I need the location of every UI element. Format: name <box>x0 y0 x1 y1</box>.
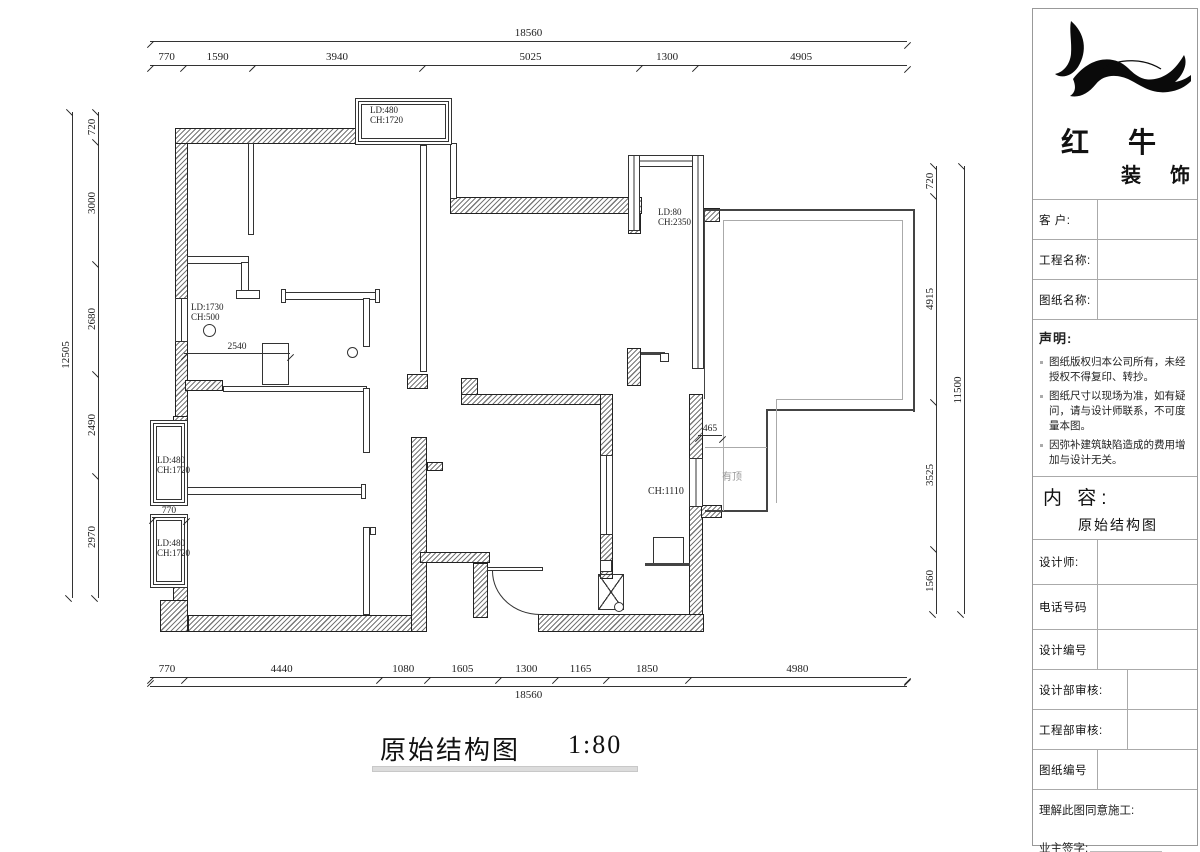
field-design-no: 设计编号 <box>1033 629 1197 669</box>
terrace-line-inner <box>776 399 777 503</box>
dim-text: 1605 <box>451 663 473 675</box>
window-balcony-door <box>175 298 188 342</box>
statement-section: 声明: 图纸版权归本公司所有，未经授权不得复印、转抄。 图纸尺寸以现场为准，如有… <box>1033 319 1197 476</box>
drawing-sheet: 18560 770 1590 3940 5025 1300 4905 770 4… <box>0 0 1200 852</box>
dim-text: 720 <box>86 119 98 136</box>
field-designer-label: 设计师: <box>1033 540 1098 584</box>
wall-step <box>420 552 490 563</box>
fixture-box <box>660 353 669 362</box>
wall-block <box>407 374 428 389</box>
dim-left-total: 12505 <box>72 112 86 598</box>
dim-770: 770 <box>152 506 186 518</box>
title-underline <box>372 766 638 772</box>
field-designer-value <box>1098 540 1197 584</box>
shaft-top <box>600 560 612 572</box>
dim-text: 770 <box>159 663 176 675</box>
field-project: 工程名称: <box>1033 239 1197 279</box>
field-project-label: 工程名称: <box>1033 240 1098 279</box>
circle-marker <box>614 602 624 612</box>
partition-cap <box>361 484 366 499</box>
circle-marker <box>203 324 216 337</box>
agree-text: 理解此图同意施工: <box>1039 802 1193 818</box>
dim-text: 2680 <box>86 308 98 330</box>
dim-left-chain: 720 3000 2680 2490 2970 <box>98 112 112 598</box>
terrace-line <box>705 209 915 211</box>
field-design-review-value <box>1128 670 1197 709</box>
terrace-line-inner <box>723 220 903 221</box>
window-bath-left <box>600 455 613 535</box>
field-client: 客 户: <box>1033 199 1197 239</box>
dim-text: 4440 <box>271 663 293 675</box>
statement-item: 因弥补建筑缺陷造成的费用增加与设计无关。 <box>1039 438 1193 468</box>
drawing-scale: 1:80 <box>568 730 622 760</box>
dim-top-chain: 770 1590 3940 5025 1300 4905 <box>150 52 907 66</box>
dim-text: 1560 <box>924 570 936 592</box>
terrace-line-inner <box>902 220 903 400</box>
dim-text: 18560 <box>515 27 543 39</box>
field-design-review: 设计部审核: <box>1033 669 1197 709</box>
dim-465: 465 <box>698 424 722 436</box>
terrace-divider <box>705 447 767 448</box>
wall-bottom-mid <box>538 614 704 632</box>
window-top-right-jamb <box>628 155 640 231</box>
dim-text: 720 <box>924 173 936 190</box>
brand-name: 红 牛 <box>1061 121 1172 161</box>
counter <box>653 537 684 565</box>
drawing-title: 原始结构图 <box>380 730 520 767</box>
label-balcony-door: LD:1730CH:500 <box>191 302 224 322</box>
field-engineering-review-value <box>1128 710 1197 749</box>
logo-area: 红 牛 装 饰 <box>1033 9 1197 199</box>
partition <box>420 145 427 372</box>
dim-top-total: 18560 <box>150 28 907 42</box>
label-window-left-lower: LD:480CH:1720 <box>157 538 190 558</box>
field-project-value <box>1098 240 1197 279</box>
terrace-line <box>704 209 705 399</box>
field-phone: 电话号码 <box>1033 584 1197 629</box>
dim-text: 1165 <box>570 663 592 675</box>
partition <box>248 143 254 235</box>
wall-stub <box>627 348 641 386</box>
statement-item: 图纸尺寸以现场为准，如有疑问，请与设计师联系，不可度量本图。 <box>1039 389 1193 434</box>
dim-text: 4905 <box>790 51 812 63</box>
owner-signature: 业主签字: <box>1039 840 1193 852</box>
partition <box>236 290 260 299</box>
wall-stub <box>427 462 443 471</box>
dim-right-total: 11500 <box>964 166 978 614</box>
dim-text: 2540 <box>228 342 247 352</box>
partition <box>450 143 457 199</box>
wall-door-jamb <box>473 563 488 618</box>
dim-text: 3940 <box>326 51 348 63</box>
dim-text: 1300 <box>515 663 537 675</box>
field-drawing: 图纸名称: <box>1033 279 1197 319</box>
label-window-left-upper: LD:480CH:1720 <box>157 455 190 475</box>
label-ch1110: CH:1110 <box>648 486 684 497</box>
field-drawing-no-label: 图纸编号 <box>1033 750 1098 789</box>
terrace-line-inner <box>777 399 903 400</box>
field-designer: 设计师: <box>1033 539 1197 584</box>
partition-notch <box>370 527 376 535</box>
title-block: 红 牛 装 饰 客 户: 工程名称: 图纸名称: 声明: 图纸版权归本公司所有，… <box>1032 8 1198 846</box>
content-heading: 内 容: <box>1043 483 1193 510</box>
dim-2540: 2540 <box>184 342 290 354</box>
field-design-no-label: 设计编号 <box>1033 630 1098 669</box>
field-client-label: 客 户: <box>1033 200 1098 239</box>
field-client-value <box>1098 200 1197 239</box>
field-engineering-review: 工程部审核: <box>1033 709 1197 749</box>
field-engineering-review-label: 工程部审核: <box>1033 710 1128 749</box>
field-phone-value <box>1098 585 1197 629</box>
wall-bath-top <box>461 394 603 405</box>
dim-text: 770 <box>158 51 175 63</box>
dim-text: 18560 <box>515 689 543 701</box>
window-bath-right <box>689 458 703 507</box>
dim-tick <box>147 41 154 48</box>
dim-text: 1850 <box>636 663 658 675</box>
dim-text: 5025 <box>520 51 542 63</box>
label-window-right: LD:80CH:2350 <box>658 207 691 227</box>
door-arc <box>492 571 540 615</box>
wall-bath-left-up <box>600 394 613 457</box>
content-section: 内 容: 原始结构图 <box>1033 476 1197 539</box>
field-drawing-no-value <box>1098 750 1197 789</box>
field-drawing-value <box>1098 280 1197 319</box>
wall-top-mid <box>450 197 642 214</box>
dim-text: 4915 <box>924 288 936 310</box>
field-design-review-label: 设计部审核: <box>1033 670 1128 709</box>
signature-section: 理解此图同意施工: 业主签字: <box>1033 789 1197 852</box>
terrace-line <box>705 510 768 512</box>
signature-line <box>1090 841 1162 852</box>
dim-right-chain: 720 4915 3525 1560 <box>936 166 950 614</box>
dim-text: 12505 <box>60 341 72 369</box>
field-drawing-label: 图纸名称: <box>1033 280 1098 319</box>
label-covered: 有顶 <box>722 472 742 483</box>
owner-signature-label: 业主签字: <box>1039 843 1088 852</box>
wall-left-upper <box>175 128 188 300</box>
counter-line <box>645 563 690 566</box>
field-phone-label: 电话号码 <box>1033 585 1098 629</box>
label-window-top: LD:480CH:1720 <box>370 105 403 125</box>
wall-bath-right-low <box>689 505 703 615</box>
dim-text: 1300 <box>656 51 678 63</box>
dim-text: 3000 <box>86 192 98 214</box>
wall-center-vertical <box>411 437 427 632</box>
dim-text: 11500 <box>952 376 964 403</box>
dim-text: 3525 <box>924 464 936 486</box>
partition <box>363 527 370 615</box>
dim-text: 465 <box>703 424 717 434</box>
terrace-line-inner <box>723 221 724 511</box>
wall-top-left <box>175 128 367 144</box>
partition <box>223 386 367 392</box>
dim-text: 2970 <box>86 526 98 548</box>
redbull-logo-icon <box>1041 17 1191 122</box>
dim-text: 2490 <box>86 414 98 436</box>
wall-bath-left-low <box>600 533 613 579</box>
terrace-line <box>913 209 915 412</box>
dim-text: 1080 <box>392 663 414 675</box>
partition <box>187 256 249 264</box>
statement-heading: 声明: <box>1039 328 1193 347</box>
wall-bottom-left <box>188 615 412 632</box>
dim-text: 770 <box>162 506 176 516</box>
wall-block <box>185 380 223 391</box>
partition-cap <box>281 289 286 303</box>
dim-bottom-total: 18560 <box>150 686 907 700</box>
terrace-line <box>766 409 768 512</box>
wall-bottom-corner <box>160 600 188 632</box>
partition <box>363 388 370 453</box>
partition <box>363 298 370 347</box>
field-design-no-value <box>1098 630 1197 669</box>
circle-marker <box>347 347 358 358</box>
partition-cap <box>375 289 380 303</box>
dim-bottom-chain: 770 4440 1080 1605 1300 1165 1850 4980 <box>150 664 907 678</box>
window-right-tall <box>692 155 704 369</box>
dim-text: 1590 <box>207 51 229 63</box>
dim-text: 4980 <box>786 663 808 675</box>
brand-suffix: 装 饰 <box>1121 159 1200 188</box>
terrace-line <box>767 409 915 411</box>
content-value: 原始结构图 <box>1043 515 1193 535</box>
field-drawing-no: 图纸编号 <box>1033 749 1197 789</box>
statement-item: 图纸版权归本公司所有，未经授权不得复印、转抄。 <box>1039 355 1193 385</box>
